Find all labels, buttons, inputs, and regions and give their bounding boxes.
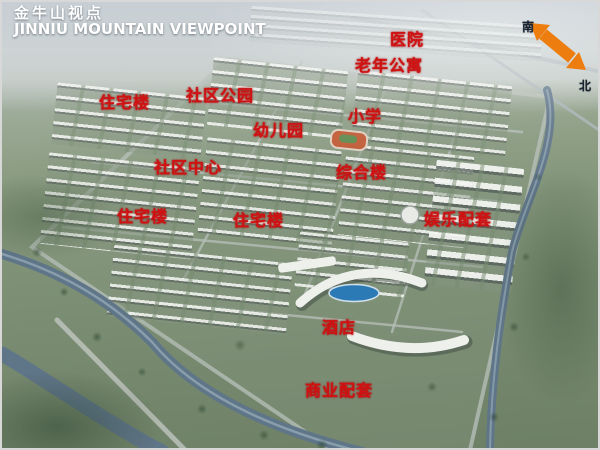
resort-pool [329, 285, 379, 302]
viewpoint-title: 金牛山视点 JINNIU MOUNTAIN VIEWPOINT [14, 5, 266, 37]
river-west [2, 254, 362, 450]
compass-south-label: 南 [522, 18, 534, 35]
river-southwest [2, 354, 162, 450]
title-chinese: 金牛山视点 [14, 5, 266, 21]
label-hospital: 医院 [390, 32, 424, 48]
river-east-highlight [490, 90, 550, 450]
river-west-highlight [2, 254, 362, 450]
aerial-masterplan-view: 金牛山视点 JINNIU MOUNTAIN VIEWPOINT 南 北 医院 老… [0, 0, 600, 450]
compass-arrow-shaft [543, 34, 572, 58]
label-senior-apartments: 老年公寓 [355, 58, 423, 74]
water-resort-layer [2, 2, 600, 450]
label-entertainment: 娱乐配套 [424, 212, 492, 228]
label-residential-c: 住宅楼 [233, 213, 284, 229]
label-kindergarten: 幼儿园 [253, 123, 304, 139]
title-english: JINNIU MOUNTAIN VIEWPOINT [14, 21, 266, 37]
compass-north-label: 北 [579, 77, 591, 94]
label-residential-w: 住宅楼 [117, 209, 168, 225]
label-residential-nw: 住宅楼 [99, 95, 150, 111]
label-community-center: 社区中心 [154, 160, 222, 176]
label-primary-school: 小学 [348, 109, 382, 125]
label-community-park: 社区公园 [186, 88, 254, 104]
label-commercial: 商业配套 [305, 383, 373, 399]
river-east [490, 90, 550, 450]
hotel-wing-building [352, 336, 464, 348]
dome-building [401, 206, 419, 224]
resort-slab-building [278, 256, 337, 273]
label-hotel: 酒店 [322, 320, 356, 336]
label-mixed-use-building: 综合楼 [336, 165, 387, 181]
